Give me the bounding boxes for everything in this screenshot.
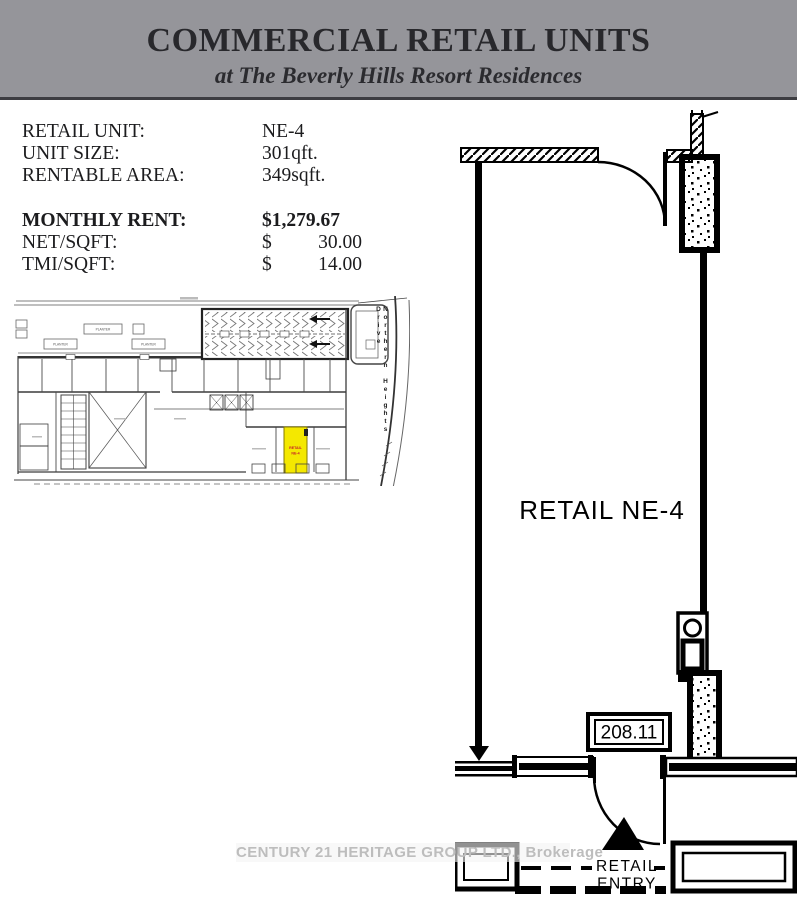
- detail-value: 30.00: [318, 232, 362, 254]
- page-header: COMMERCIAL RETAIL UNITS at The Beverly H…: [0, 0, 797, 100]
- currency-sign: $: [262, 254, 272, 276]
- sidewalk-lines: [14, 298, 407, 305]
- elevator-bank: [210, 395, 253, 410]
- retail-entry-label: RETAIL: [596, 858, 658, 875]
- detail-label: TMI/SQFT:: [22, 254, 115, 275]
- planter-label: PLANTER: [96, 327, 111, 331]
- detail-label: RENTABLE AREA:: [22, 165, 185, 186]
- floor-plan-unit-label: RETAIL NE-4: [519, 495, 685, 525]
- detail-value: $1,279.67: [262, 210, 340, 232]
- street-name-label: Northern Heights Drive: [374, 306, 389, 474]
- door-swing-arc-top: [598, 162, 665, 225]
- detail-label: MONTHLY RENT:: [22, 210, 187, 231]
- detail-row-net-sqft: NET/SQFT: $ 30.00: [22, 232, 372, 254]
- brokerage-watermark: CENTURY 21 HERITAGE GROUP LTD., Brokerag…: [236, 843, 570, 862]
- detail-row-tmi-sqft: TMI/SQFT: $ 14.00: [22, 254, 372, 276]
- open-area: [89, 392, 146, 468]
- page-title: COMMERCIAL RETAIL UNITS: [0, 0, 797, 60]
- detail-row-retail-unit: RETAIL UNIT: NE-4: [22, 121, 372, 143]
- planter-label: PLANTER: [53, 342, 68, 346]
- detail-label: UNIT SIZE:: [22, 143, 120, 164]
- detail-value: 349sqft.: [262, 165, 325, 187]
- highlighted-unit-label: NE-4: [291, 452, 299, 456]
- planter-area: [16, 320, 202, 353]
- unit-details: RETAIL UNIT: NE-4 UNIT SIZE: 301qft. REN…: [22, 121, 372, 276]
- entry-door-arrow-icon: [602, 817, 644, 850]
- unit-floor-plan: 208.11 RETAIL NE-4 RETAIL ENTRY: [455, 110, 797, 911]
- page-subtitle: at The Beverly Hills Resort Residences: [0, 63, 797, 89]
- detail-row-unit-size: UNIT SIZE: 301qft.: [22, 143, 372, 165]
- detail-row-monthly-rent: MONTHLY RENT: $1,279.67: [22, 210, 372, 232]
- storefront-walls: [455, 755, 797, 783]
- detail-value: NE-4: [262, 121, 304, 143]
- detail-row-rentable-area: RENTABLE AREA: 349sqft.: [22, 165, 372, 187]
- currency-sign: $: [262, 232, 272, 254]
- detail-label: NET/SQFT:: [22, 232, 117, 253]
- wall-fixture: [678, 613, 707, 673]
- detail-value: 14.00: [318, 254, 362, 276]
- dimension-value: 208.11: [601, 723, 658, 744]
- highlighted-unit: [284, 427, 307, 473]
- stippled-column-top: [682, 157, 717, 250]
- planter-label: PLANTER: [141, 342, 156, 346]
- dimension-badge: 208.11: [588, 714, 670, 750]
- parking-ramp: [202, 309, 348, 359]
- retail-entry-label: ENTRY: [597, 876, 657, 893]
- stairs: [61, 395, 86, 469]
- highlighted-unit-label: RETAIL: [289, 446, 303, 450]
- stippled-column-bottom: [690, 673, 719, 761]
- site-plan-thumbnail: PLANTER PLANTER PLANTER: [14, 296, 410, 486]
- detail-value: 301qft.: [262, 143, 318, 165]
- detail-label: RETAIL UNIT:: [22, 121, 145, 142]
